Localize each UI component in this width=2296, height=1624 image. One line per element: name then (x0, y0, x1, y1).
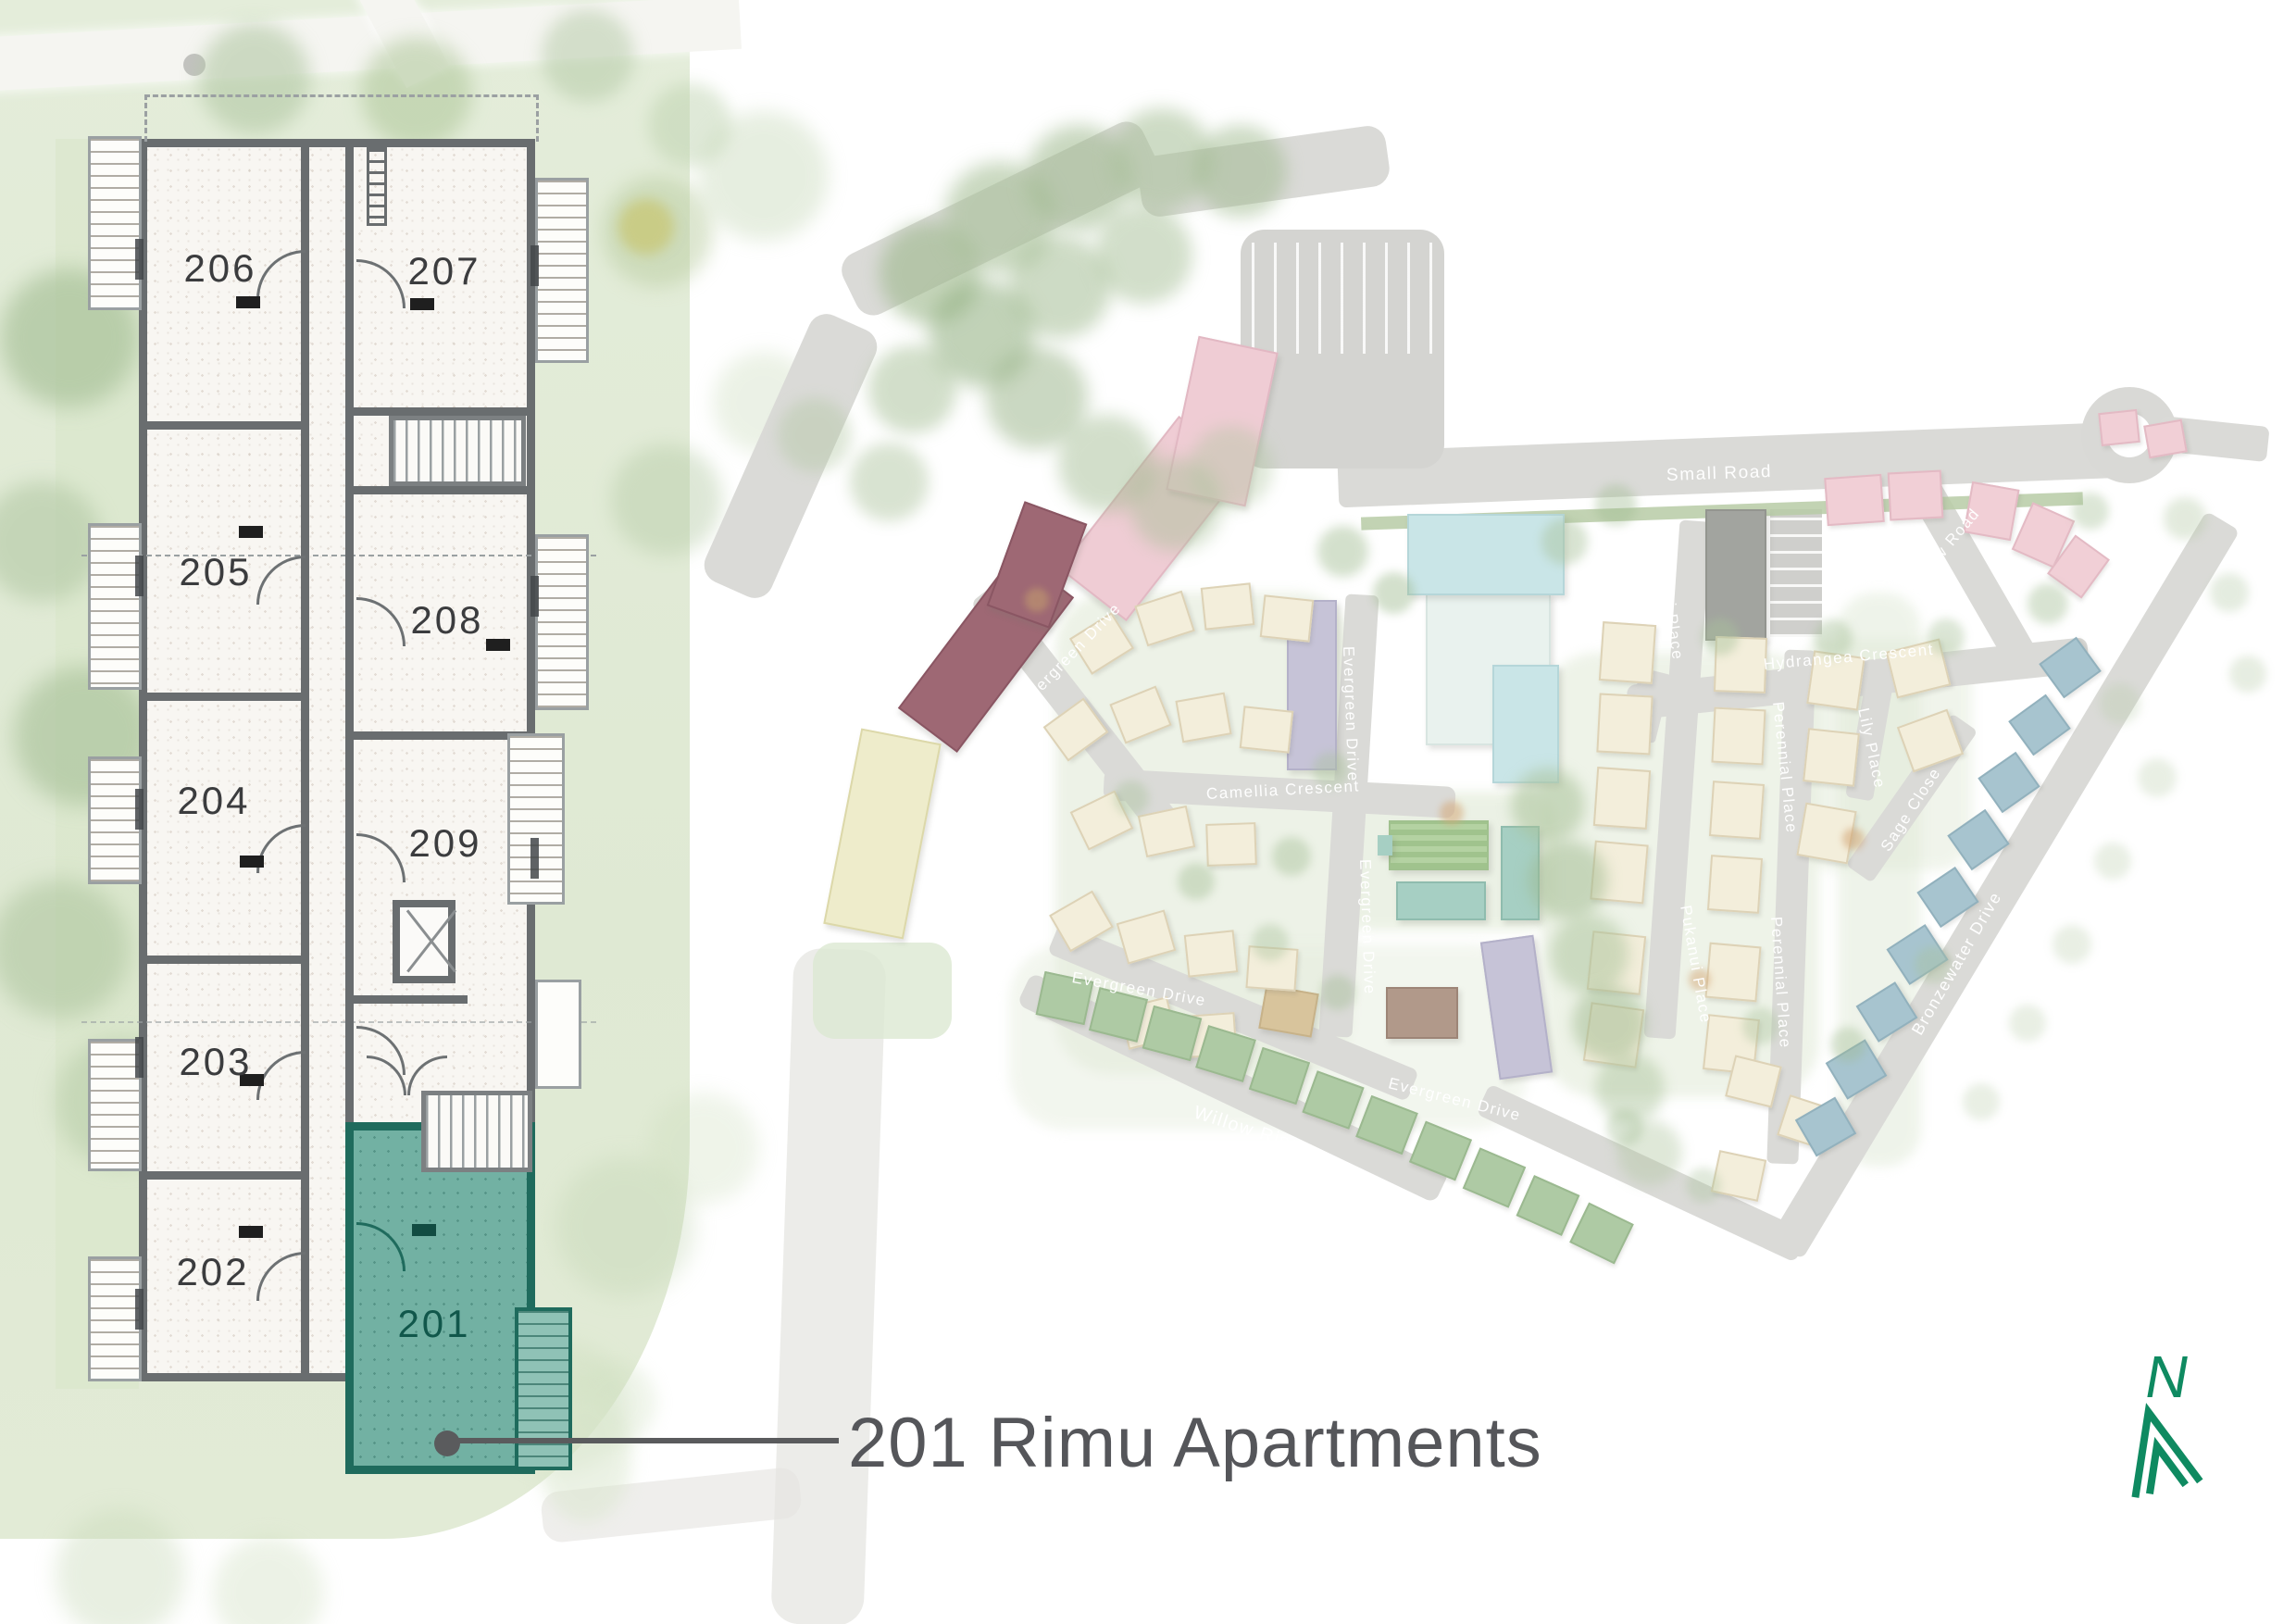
tree (2229, 656, 2266, 693)
balcony (88, 1256, 142, 1381)
tree (1272, 837, 1311, 876)
stairwell-north (389, 416, 526, 486)
house-footprint (2098, 409, 2140, 446)
house-footprint (1240, 706, 1294, 753)
unit-204[interactable]: 204 (154, 767, 274, 835)
tree (1702, 618, 1739, 656)
utility-box (535, 980, 581, 1089)
balcony (88, 1039, 142, 1171)
unit-204-label: 204 (177, 779, 250, 823)
tree (2100, 683, 2140, 724)
house-footprint (1824, 474, 1884, 526)
tree (1541, 518, 1588, 565)
house-footprint (1596, 693, 1653, 756)
carpark (1241, 230, 1444, 468)
page-canvas: 206 207 205 208 204 209 203 202 201 (0, 0, 2296, 1624)
house-footprint (1803, 728, 1860, 787)
tree (648, 1093, 759, 1204)
tree (1842, 828, 1865, 850)
house-footprint (1704, 943, 1761, 1003)
tree (1194, 125, 1287, 218)
callout-line (454, 1438, 839, 1443)
unit-205-label: 205 (179, 550, 252, 594)
unit-divider (347, 486, 535, 494)
unit-209[interactable]: 209 (385, 809, 505, 878)
unit-divider (347, 995, 468, 1004)
tree (56, 1509, 185, 1624)
balcony (507, 733, 565, 905)
ghost-lawn-pad (813, 943, 952, 1039)
tree (699, 111, 829, 241)
wall-opening (530, 838, 539, 879)
unit-divider (141, 1171, 309, 1180)
balcony (535, 178, 589, 363)
unit-202-label: 202 (176, 1250, 249, 1294)
tree (2053, 925, 2091, 964)
unit-203[interactable]: 203 (156, 1028, 276, 1096)
unit-201-balcony (515, 1307, 572, 1470)
callout-label: 201 Rimu Apartments (848, 1403, 1542, 1483)
house-footprint (1260, 594, 1315, 642)
wall-opening (135, 789, 143, 830)
balcony (535, 534, 589, 710)
house-footprint (1593, 767, 1651, 830)
tree (2028, 583, 2068, 624)
balcony (88, 523, 142, 690)
tree (1178, 863, 1215, 900)
building-teal (1378, 835, 1392, 856)
tree (1511, 768, 1585, 843)
unit-208[interactable]: 208 (387, 586, 507, 655)
corridor-wall-east (345, 144, 354, 1122)
tree (1025, 588, 1049, 612)
tree (1317, 526, 1368, 577)
road-label-small-road: Small Road (1666, 462, 1773, 486)
tree (1595, 484, 1637, 526)
tree (1320, 975, 1355, 1010)
tree (2164, 497, 2206, 540)
house-footprint (1463, 1147, 1526, 1207)
apartment-block-pale-yellow (823, 729, 941, 940)
wall-opening (530, 245, 539, 286)
ghost-walkway (770, 947, 886, 1624)
house-footprint (1516, 1175, 1580, 1236)
house-footprint (1205, 822, 1257, 867)
tree (1095, 206, 1192, 304)
entry-stair-north (367, 146, 387, 226)
tree (213, 1537, 324, 1624)
wall-opening (135, 1037, 143, 1078)
unit-206-label: 206 (183, 246, 256, 291)
tree (850, 443, 929, 521)
tree (1572, 986, 1646, 1060)
unit-207[interactable]: 207 (384, 237, 505, 306)
house-footprint (1599, 621, 1656, 684)
tree (1963, 1083, 2000, 1120)
unit-divider (141, 956, 309, 964)
tree (1529, 841, 1607, 919)
stairwell-south (421, 1091, 532, 1172)
sports-field (1389, 820, 1489, 870)
house-footprint (1184, 930, 1239, 977)
house-footprint (2143, 419, 2188, 459)
house-footprint (1201, 582, 1255, 630)
unit-205[interactable]: 205 (156, 538, 276, 606)
house-footprint (1175, 693, 1231, 743)
tree (2072, 493, 2109, 530)
roof-overhang-dashed (144, 94, 539, 142)
balcony (88, 756, 142, 884)
tree (1252, 924, 1289, 961)
tree (2138, 758, 2177, 797)
wall-opening (135, 556, 143, 596)
carpark-stripes (1252, 243, 1433, 354)
wall-opening (530, 576, 539, 617)
north-arrow-icon (2120, 1400, 2209, 1493)
unit-202[interactable]: 202 (153, 1238, 273, 1306)
house-footprint (1888, 470, 1944, 521)
lift-shaft (393, 900, 455, 983)
unit-207-label: 207 (407, 249, 480, 294)
callout-dot (434, 1430, 460, 1456)
wall-opening (135, 1289, 143, 1330)
unit-divider (347, 407, 535, 416)
tree (1440, 801, 1464, 825)
door-tick (239, 1226, 263, 1238)
unit-201-label: 201 (397, 1302, 470, 1346)
tree (1550, 915, 1628, 993)
house-footprint (1569, 1203, 1634, 1265)
tree (2094, 843, 2131, 880)
unit-divider (141, 421, 309, 430)
tree (1373, 572, 1415, 614)
unit-201[interactable]: 201 (374, 1290, 494, 1358)
tree (868, 345, 956, 433)
building-tan (1258, 984, 1318, 1037)
tree (1190, 426, 1273, 509)
house-footprint (1711, 707, 1766, 766)
building-brown (1386, 987, 1458, 1039)
community-building-cyan (1407, 514, 1565, 595)
balcony (88, 136, 142, 310)
tree (542, 9, 634, 102)
tree (1114, 781, 1149, 816)
door-tick (239, 526, 263, 538)
unit-208-label: 208 (410, 598, 483, 643)
house-footprint (2008, 694, 2070, 756)
unit-203-label: 203 (179, 1040, 252, 1084)
community-building-cyan (1492, 665, 1559, 783)
building-teal (1396, 881, 1486, 920)
tree (1606, 1109, 1643, 1146)
tree (2210, 573, 2249, 612)
tree (1686, 1168, 1721, 1203)
tree (618, 199, 674, 255)
door-tick (240, 856, 264, 868)
tree (611, 444, 722, 556)
section-line (81, 1021, 596, 1023)
house-footprint (1707, 855, 1763, 914)
unit-209-label: 209 (408, 821, 481, 866)
unit-206[interactable]: 206 (160, 234, 281, 303)
unit-divider (141, 693, 309, 701)
wall-opening (135, 239, 143, 280)
carpark-stripes (1770, 509, 1822, 637)
tree (778, 398, 852, 472)
house-footprint (1709, 781, 1765, 840)
corridor-wall-west (301, 144, 309, 1376)
tree (1830, 1027, 1865, 1062)
door-tick-unit-201 (412, 1224, 436, 1236)
tree (2009, 1005, 2046, 1042)
